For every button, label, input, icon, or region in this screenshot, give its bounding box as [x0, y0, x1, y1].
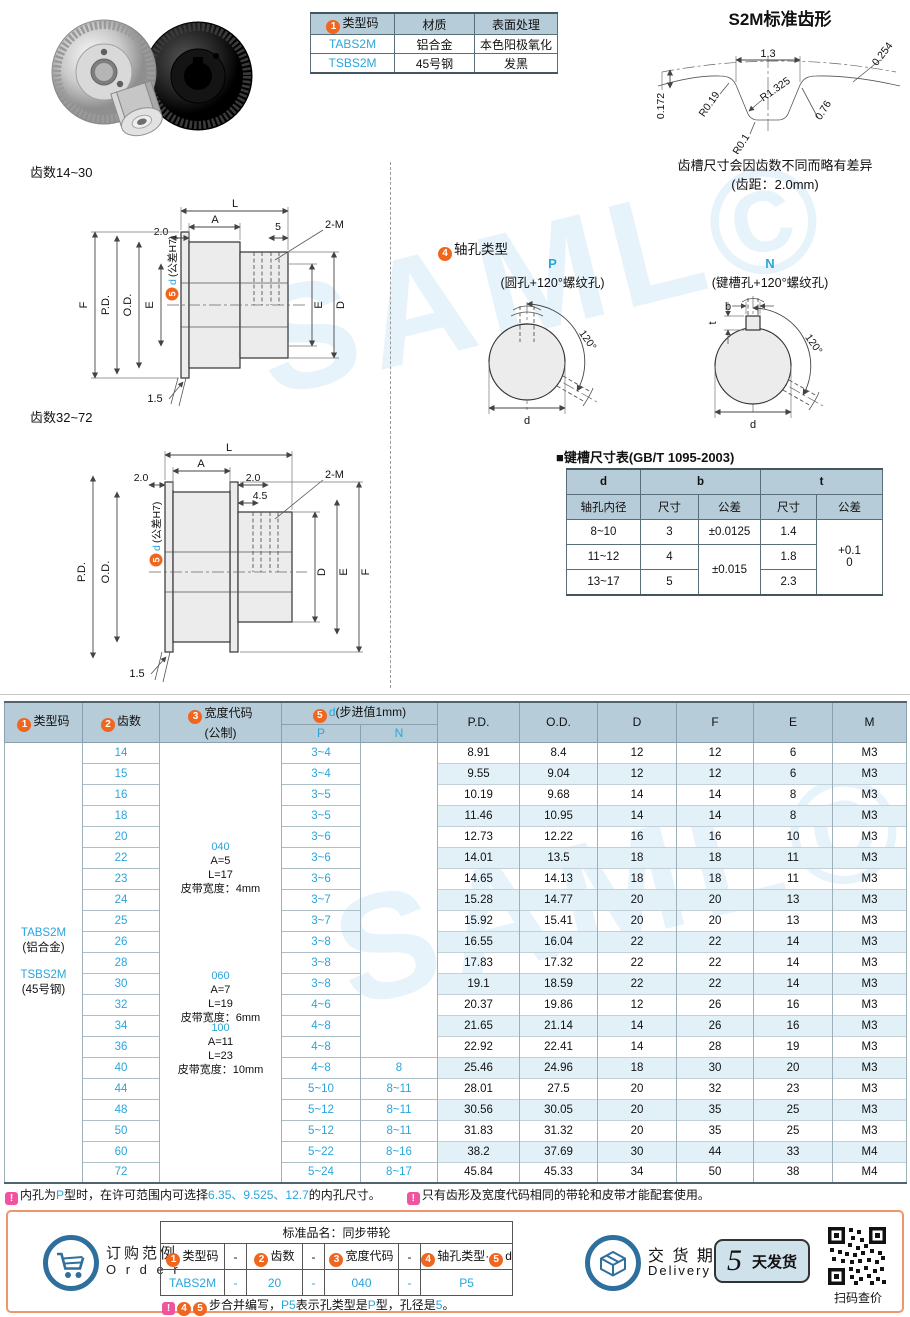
value-cell-d: 16 — [598, 826, 677, 847]
width-code-cell: 040A=5L=17皮带宽度：4mm060A=7L=19皮带宽度：6mm100A… — [160, 742, 282, 1183]
hole-type-n-desc: (键槽孔+120°螺纹孔) — [655, 272, 885, 291]
bore-range-p-cell: 3~6 — [282, 847, 361, 868]
dim-angle-120: 120° — [576, 328, 598, 353]
dash-separator: - — [303, 1270, 325, 1296]
col-header-hole-n: N — [361, 724, 438, 742]
bore-range-p-cell: 3~7 — [282, 889, 361, 910]
table-row: 505~128~1131.8331.32203525M3 — [5, 1120, 907, 1141]
table-row: TABS2M(铝合金)TSBS2M(45号钢)14040A=5L=17皮带宽度：… — [5, 742, 907, 763]
value-cell-e: 6 — [754, 742, 833, 763]
keyway-col-t: t — [761, 469, 883, 495]
order-col-type-code: 1类型码 — [161, 1244, 225, 1270]
badge-5: 5 — [168, 291, 178, 296]
value-cell-pd: 11.46 — [438, 805, 520, 826]
bore-range-p-cell: 3~4 — [282, 763, 361, 784]
footnote-1: !内孔为P型时，在许可范围内可选择6.35、9.525、12.7的内孔尺寸。 — [5, 1186, 381, 1205]
value-cell-m: M3 — [833, 931, 907, 952]
value-cell-f: 12 — [677, 742, 754, 763]
value-cell-e: 6 — [754, 763, 833, 784]
value-cell-od: 21.14 — [520, 1015, 598, 1036]
dash-separator: - — [225, 1270, 247, 1296]
value-cell-od: 16.04 — [520, 931, 598, 952]
table-row: TABS2M 铝合金 本色阳极氧化 — [311, 35, 558, 54]
teeth-count-cell[interactable]: 34 — [83, 1015, 160, 1036]
value-cell-e: 19 — [754, 1036, 833, 1057]
keyway-d-range: 13~17 — [567, 570, 641, 596]
dim-L: L — [226, 442, 232, 454]
dim-E-right: E — [313, 301, 325, 308]
material-table-header: 1类型码 材质 表面处理 — [311, 13, 558, 35]
value-cell-d: 12 — [598, 742, 677, 763]
tooth-profile-note: 齿槽尺寸会因齿数不同而略有差异 — [640, 155, 910, 174]
value-cell-pd: 15.28 — [438, 889, 520, 910]
dim-left-2_0: 2.0 — [134, 472, 149, 484]
value-cell-m: M3 — [833, 1057, 907, 1078]
value-cell-e: 23 — [754, 1078, 833, 1099]
delivery-days: 5 — [727, 1244, 742, 1278]
value-cell-f: 14 — [677, 784, 754, 805]
exclamation-icon: ! — [407, 1192, 420, 1205]
value-cell-f: 32 — [677, 1078, 754, 1099]
teeth-count-cell[interactable]: 48 — [83, 1099, 160, 1120]
bore-range-p-cell: 3~6 — [282, 826, 361, 847]
value-cell-e: 25 — [754, 1120, 833, 1141]
teeth-count-cell[interactable]: 24 — [83, 889, 160, 910]
bore-range-p-cell: 3~5 — [282, 805, 361, 826]
type-code-material: (铝合金) — [5, 939, 82, 955]
badge-5: 5 — [489, 1253, 503, 1267]
dash-separator: - — [225, 1244, 247, 1270]
drawing-teeth-14-30: L A 2.0 5 2-M 5 d (公差H7) F P.D. O.D. E E… — [25, 180, 390, 408]
teeth-count-cell[interactable]: 20 — [83, 826, 160, 847]
bore-range-p-cell: 4~8 — [282, 1036, 361, 1057]
badge-1: 1 — [166, 1253, 180, 1267]
value-cell-d: 20 — [598, 1099, 677, 1120]
value-cell-f: 22 — [677, 931, 754, 952]
value-cell-pd: 8.91 — [438, 742, 520, 763]
bore-range-p-cell: 4~6 — [282, 994, 361, 1015]
value-cell-od: 17.32 — [520, 952, 598, 973]
value-cell-m: M3 — [833, 994, 907, 1015]
bore-range-n-cell: 8~16 — [361, 1141, 438, 1162]
type-code-link[interactable]: TSBS2M — [5, 969, 82, 981]
table-row: 344~821.6521.14142616M3 — [5, 1015, 907, 1036]
table-row: 163~510.199.6814148M3 — [5, 784, 907, 805]
dash-separator: - — [399, 1244, 421, 1270]
order-col-teeth: 2齿数 — [247, 1244, 303, 1270]
value-cell-e: 20 — [754, 1057, 833, 1078]
value-cell-od: 14.77 — [520, 889, 598, 910]
value-cell-m: M3 — [833, 742, 907, 763]
value-cell-d: 20 — [598, 1078, 677, 1099]
width-code-value[interactable]: 040 — [160, 840, 281, 854]
value-cell-pd: 14.01 — [438, 847, 520, 868]
bore-range-n-cell: 8~17 — [361, 1162, 438, 1183]
value-cell-d: 14 — [598, 784, 677, 805]
teeth-count-cell[interactable]: 50 — [83, 1120, 160, 1141]
dim-D: D — [335, 301, 347, 309]
value-cell-f: 18 — [677, 868, 754, 889]
badge-1: 1 — [17, 718, 31, 732]
value-cell-e: 13 — [754, 889, 833, 910]
value-cell-od: 15.41 — [520, 910, 598, 931]
dim-OD: O.D. — [122, 294, 134, 317]
value-cell-d: 30 — [598, 1141, 677, 1162]
value-cell-f: 22 — [677, 952, 754, 973]
table-row: 183~511.4610.9514148M3 — [5, 805, 907, 826]
badge-3: 3 — [329, 1253, 343, 1267]
value-cell-pd: 15.92 — [438, 910, 520, 931]
dim-PD: P.D. — [100, 295, 112, 315]
bore-range-p-cell: 5~12 — [282, 1120, 361, 1141]
value-cell-pd: 14.65 — [438, 868, 520, 889]
dim-keyway-t: t — [707, 321, 719, 324]
qr-code — [826, 1225, 888, 1287]
col-header-finish: 表面处理 — [475, 13, 558, 35]
col-header-material: 材质 — [395, 13, 475, 35]
value-cell-pd: 45.84 — [438, 1162, 520, 1183]
keyway-col-b-tol: 公差 — [699, 495, 761, 520]
bore-range-n-cell — [361, 742, 438, 1057]
value-cell-m: M3 — [833, 763, 907, 784]
dim-bore-d: d — [750, 419, 756, 431]
value-cell-od: 14.13 — [520, 868, 598, 889]
teeth-count-cell[interactable]: 18 — [83, 805, 160, 826]
dash-separator: - — [399, 1270, 421, 1296]
value-cell-pd: 30.56 — [438, 1099, 520, 1120]
keyway-d-range: 11~12 — [567, 545, 641, 570]
keyway-col-b-size: 尺寸 — [641, 495, 699, 520]
type-code-material: (45号钢) — [5, 981, 82, 997]
bore-range-p-cell: 5~10 — [282, 1078, 361, 1099]
col-header-od: O.D. — [520, 702, 598, 742]
keyway-col-d-sub: 轴孔内径 — [567, 495, 641, 520]
value-cell-d: 20 — [598, 1120, 677, 1141]
value-cell-f: 14 — [677, 805, 754, 826]
value-cell-e: 16 — [754, 994, 833, 1015]
dim-E: E — [338, 568, 350, 575]
keyway-t-size: 1.8 — [761, 545, 817, 570]
order-value-type-code: TABS2M — [161, 1270, 225, 1296]
tooth-pitch-note: (齿距：2.0mm) — [640, 174, 910, 193]
table-row: 445~108~1128.0127.5203223M3 — [5, 1078, 907, 1099]
dim-angle-120: 120° — [802, 332, 824, 357]
width-code-value[interactable]: 060 — [160, 969, 281, 983]
teeth-count-cell[interactable]: 44 — [83, 1078, 160, 1099]
section-rule — [0, 694, 910, 695]
dim-chamfer: 1.5 — [129, 668, 144, 680]
type-code-cell: TABS2M(铝合金)TSBS2M(45号钢) — [5, 742, 83, 1183]
dim-chamfer: 1.5 — [147, 393, 162, 405]
order-value-width-code: 040 — [325, 1270, 399, 1296]
value-cell-m: M4 — [833, 1162, 907, 1183]
section-divider — [390, 162, 391, 688]
value-cell-pd: 9.55 — [438, 763, 520, 784]
value-cell-m: M3 — [833, 1099, 907, 1120]
keyway-table-title: ■键槽尺寸表(GB/T 1095-2003) — [556, 447, 734, 466]
value-cell-m: M3 — [833, 826, 907, 847]
value-cell-d: 18 — [598, 847, 677, 868]
teeth-count-cell[interactable]: 30 — [83, 973, 160, 994]
value-cell-f: 16 — [677, 826, 754, 847]
dim-screws-2M: 2-M — [325, 219, 344, 231]
col-header-type-code: 1类型码 — [5, 702, 83, 742]
dim-4_5: 4.5 — [253, 490, 268, 502]
type-code-link[interactable]: TABS2M — [311, 35, 395, 54]
badge-1: 1 — [326, 20, 340, 34]
bore-d: d — [167, 279, 179, 285]
value-cell-pd: 21.65 — [438, 1015, 520, 1036]
dim-PD: P.D. — [76, 562, 88, 582]
teeth-count-cell[interactable]: 28 — [83, 952, 160, 973]
badge-3: 3 — [188, 710, 202, 724]
teeth-count-cell[interactable]: 25 — [83, 910, 160, 931]
footnotes: !内孔为P型时，在许可范围内可选择6.35、9.525、12.7的内孔尺寸。 !… — [5, 1186, 710, 1205]
teeth-count-cell[interactable]: 26 — [83, 931, 160, 952]
value-cell-f: 28 — [677, 1036, 754, 1057]
dim-F: F — [360, 568, 372, 575]
teeth-count-cell[interactable]: 22 — [83, 847, 160, 868]
teeth-count-cell[interactable]: 60 — [83, 1141, 160, 1162]
value-cell-f: 20 — [677, 910, 754, 931]
material-table: 1类型码 材质 表面处理 TABS2M 铝合金 本色阳极氧化 TSBS2M 45… — [310, 12, 558, 74]
value-cell-pd: 12.73 — [438, 826, 520, 847]
header-row: 1类型码 2齿数 3宽度代码 (公制) 5d(步进值1mm) P.D. O.D.… — [5, 702, 907, 724]
table-row: d b t — [567, 469, 883, 495]
teeth-count-cell[interactable]: 16 — [83, 784, 160, 805]
dim-E-left: E — [144, 301, 156, 308]
table-row: 243~715.2814.77202013M3 — [5, 889, 907, 910]
badge-4: 4 — [177, 1302, 191, 1316]
bore-range-p-cell: 4~8 — [282, 1057, 361, 1078]
value-cell-f: 35 — [677, 1120, 754, 1141]
delivery-days-box: 5 天发货 — [714, 1239, 810, 1283]
table-row: 标准品名：同步带轮 — [161, 1222, 513, 1244]
hole-type-n-diagram: b t 120° d — [658, 290, 888, 442]
bore-range-n-cell: 8~11 — [361, 1099, 438, 1120]
badge-4: 4 — [421, 1253, 435, 1267]
teeth-count-cell[interactable]: 36 — [83, 1036, 160, 1057]
bore-range-p-cell: 3~8 — [282, 931, 361, 952]
bore-range-n-cell: 8~11 — [361, 1078, 438, 1099]
dim-L: L — [232, 198, 238, 210]
badge-2: 2 — [101, 718, 115, 732]
bore-range-p-cell: 3~8 — [282, 973, 361, 994]
order-value-hole: P5 — [421, 1270, 513, 1296]
value-cell-e: 10 — [754, 826, 833, 847]
value-cell-m: M3 — [833, 868, 907, 889]
col-header-width-code: 3宽度代码 (公制) — [160, 702, 282, 742]
order-delivery-panel: 订购范例 O r d e r 标准品名：同步带轮 1类型码 - 2齿数 - 3宽… — [6, 1210, 904, 1313]
value-cell-od: 31.32 — [520, 1120, 598, 1141]
value-cell-d: 12 — [598, 763, 677, 784]
table-row: TSBS2M 45号钢 发黑 — [311, 54, 558, 74]
order-note: !45步合并编写，P5表示孔类型是P型，孔径是5。 — [162, 1296, 454, 1316]
value-cell-pd: 20.37 — [438, 994, 520, 1015]
bore-range-p-cell: 3~7 — [282, 910, 361, 931]
width-code-detail: L=19 — [160, 997, 281, 1011]
value-cell-f: 20 — [677, 889, 754, 910]
keyway-col-t-tol: 公差 — [817, 495, 883, 520]
keyway-b-tol: ±0.0125 — [699, 520, 761, 545]
bore-range-p-cell: 5~22 — [282, 1141, 361, 1162]
value-cell-d: 18 — [598, 868, 677, 889]
dim-flank: 0.76 — [813, 98, 834, 122]
value-cell-od: 30.05 — [520, 1099, 598, 1120]
value-cell-d: 18 — [598, 1057, 677, 1078]
order-col-hole-type: 4轴孔类型·5d — [421, 1244, 513, 1270]
bore-d: d — [151, 545, 163, 551]
col-header-E: E — [754, 702, 833, 742]
table-row: 324~620.3719.86122616M3 — [5, 994, 907, 1015]
width-code-detail: A=11 — [160, 1035, 281, 1049]
value-cell-pd: 16.55 — [438, 931, 520, 952]
value-cell-d: 22 — [598, 931, 677, 952]
col-header-teeth: 2齿数 — [83, 702, 160, 742]
value-cell-pd: 10.19 — [438, 784, 520, 805]
hole-type-p-desc: (圆孔+120°螺纹孔) — [445, 272, 660, 291]
table-row: 605~228~1638.237.69304433M4 — [5, 1141, 907, 1162]
bore-label-d: 5 d (公差H7) — [166, 236, 180, 301]
table-row: 8~10 3 ±0.0125 1.4 +0.10 — [567, 520, 883, 545]
bore-range-n-cell: 8 — [361, 1057, 438, 1078]
value-cell-pd: 22.92 — [438, 1036, 520, 1057]
value-cell-m: M3 — [833, 847, 907, 868]
keyway-col-t-size: 尺寸 — [761, 495, 817, 520]
dim-screws-2M: 2-M — [325, 469, 344, 481]
teeth-count-cell[interactable]: 40 — [83, 1057, 160, 1078]
teeth-count-cell[interactable]: 32 — [83, 994, 160, 1015]
value-cell-f: 44 — [677, 1141, 754, 1162]
table-row: 轴孔内径 尺寸 公差 尺寸 公差 — [567, 495, 883, 520]
keyway-col-b: b — [641, 469, 761, 495]
bore-range-p-cell: 4~8 — [282, 1015, 361, 1036]
value-cell-m: M3 — [833, 1036, 907, 1057]
delivery-ship-label: 天发货 — [752, 1251, 797, 1272]
width-code-group: 040A=5L=17皮带宽度：4mm — [160, 840, 281, 896]
value-cell-d: 34 — [598, 1162, 677, 1183]
table-row: 725~248~1745.8445.33345038M4 — [5, 1162, 907, 1183]
keyway-table: d b t 轴孔内径 尺寸 公差 尺寸 公差 8~10 3 ±0.0125 1.… — [566, 468, 883, 596]
value-cell-d: 20 — [598, 910, 677, 931]
finish-value: 本色阳极氧化 — [475, 35, 558, 54]
bore-range-n-cell: 8~11 — [361, 1120, 438, 1141]
dim-tooth-pitch-width: 1.3 — [760, 48, 775, 60]
table-row: 153~49.559.0412126M3 — [5, 763, 907, 784]
col-header-type-code: 1类型码 — [311, 13, 395, 35]
value-cell-m: M3 — [833, 973, 907, 994]
value-cell-od: 22.41 — [520, 1036, 598, 1057]
value-cell-od: 45.33 — [520, 1162, 598, 1183]
value-cell-d: 22 — [598, 952, 677, 973]
keyway-col-d: d — [567, 469, 641, 495]
value-cell-od: 13.5 — [520, 847, 598, 868]
value-cell-f: 26 — [677, 1015, 754, 1036]
width-code-value[interactable]: 100 — [160, 1021, 281, 1035]
teeth-count-cell[interactable]: 23 — [83, 868, 160, 889]
width-code-detail: A=5 — [160, 854, 281, 868]
value-cell-od: 24.96 — [520, 1057, 598, 1078]
dim-D: D — [316, 568, 328, 576]
hole-type-p-label: P — [445, 256, 660, 271]
value-cell-e: 16 — [754, 1015, 833, 1036]
width-code-detail: A=7 — [160, 983, 281, 997]
keyway-b-size: 4 — [641, 545, 699, 570]
value-cell-d: 14 — [598, 1036, 677, 1057]
table-row: 485~128~1130.5630.05203525M3 — [5, 1099, 907, 1120]
dim-A: A — [211, 214, 219, 226]
teeth-count-cell[interactable]: 15 — [83, 763, 160, 784]
type-code-link[interactable]: TABS2M — [5, 927, 82, 939]
value-cell-pd: 31.83 — [438, 1120, 520, 1141]
value-cell-f: 12 — [677, 763, 754, 784]
keyway-t-size: 1.4 — [761, 520, 817, 545]
type-code-link[interactable]: TSBS2M — [311, 54, 395, 74]
value-cell-pd: 38.2 — [438, 1141, 520, 1162]
keyway-t-tol: +0.10 — [817, 520, 883, 596]
standard-product-name: 标准品名：同步带轮 — [161, 1222, 513, 1244]
value-cell-od: 27.5 — [520, 1078, 598, 1099]
finish-value: 发黑 — [475, 54, 558, 74]
value-cell-f: 50 — [677, 1162, 754, 1183]
col-header-D: D — [598, 702, 677, 742]
dim-shoulder-radius: R0.19 — [697, 89, 723, 119]
value-cell-e: 14 — [754, 952, 833, 973]
bore-tolerance: (公差H7) — [166, 236, 179, 277]
hole-type-n-label: N — [655, 256, 885, 271]
keyway-t-size: 2.3 — [761, 570, 817, 596]
table-row: 404~8825.4624.96183020M3 — [5, 1057, 907, 1078]
table-row: 263~816.5516.04222214M3 — [5, 931, 907, 952]
dim-root-radius: R0.1 — [730, 132, 752, 154]
bore-range-p-cell: 5~24 — [282, 1162, 361, 1183]
table-row: 233~614.6514.13181811M3 — [5, 868, 907, 889]
table-row: 223~614.0113.5181811M3 — [5, 847, 907, 868]
value-cell-od: 10.95 — [520, 805, 598, 826]
tooth-profile-diagram: 1.3 0.254 R1.325 R0.19 0.172 0.76 R0.1 — [650, 26, 908, 154]
value-cell-pd: 17.83 — [438, 952, 520, 973]
value-cell-od: 18.59 — [520, 973, 598, 994]
col-header-pd: P.D. — [438, 702, 520, 742]
col-header-hole-p: P — [282, 724, 361, 742]
value-cell-od: 12.22 — [520, 826, 598, 847]
width-code-group: 060A=7L=19皮带宽度：6mm — [160, 969, 281, 1025]
value-cell-f: 35 — [677, 1099, 754, 1120]
order-value-teeth: 20 — [247, 1270, 303, 1296]
table-row: 1类型码 - 2齿数 - 3宽度代码 - 4轴孔类型·5d — [161, 1244, 513, 1270]
value-cell-d: 14 — [598, 805, 677, 826]
keyway-b-tol: ±0.015 — [699, 545, 761, 596]
value-cell-od: 8.4 — [520, 742, 598, 763]
cart-icon — [42, 1234, 100, 1292]
badge-5: 5 — [313, 709, 327, 723]
value-cell-m: M3 — [833, 1078, 907, 1099]
col-header-d: 5d(步进值1mm) — [282, 702, 438, 724]
dim-tooth-depth: 0.172 — [655, 93, 667, 119]
badge-5: 5 — [152, 557, 162, 562]
col-header-F: F — [677, 702, 754, 742]
width-code-detail: 皮带宽度：10mm — [160, 1063, 281, 1077]
dim-bore-d: d — [524, 415, 530, 427]
bore-range-p-cell: 3~8 — [282, 952, 361, 973]
teeth-count-cell[interactable]: 72 — [83, 1162, 160, 1183]
table-row: 364~822.9222.41142819M3 — [5, 1036, 907, 1057]
width-code-detail: 皮带宽度：4mm — [160, 882, 281, 896]
value-cell-od: 37.69 — [520, 1141, 598, 1162]
teeth-count-cell[interactable]: 14 — [83, 742, 160, 763]
value-cell-e: 25 — [754, 1099, 833, 1120]
col-header-M: M — [833, 702, 907, 742]
